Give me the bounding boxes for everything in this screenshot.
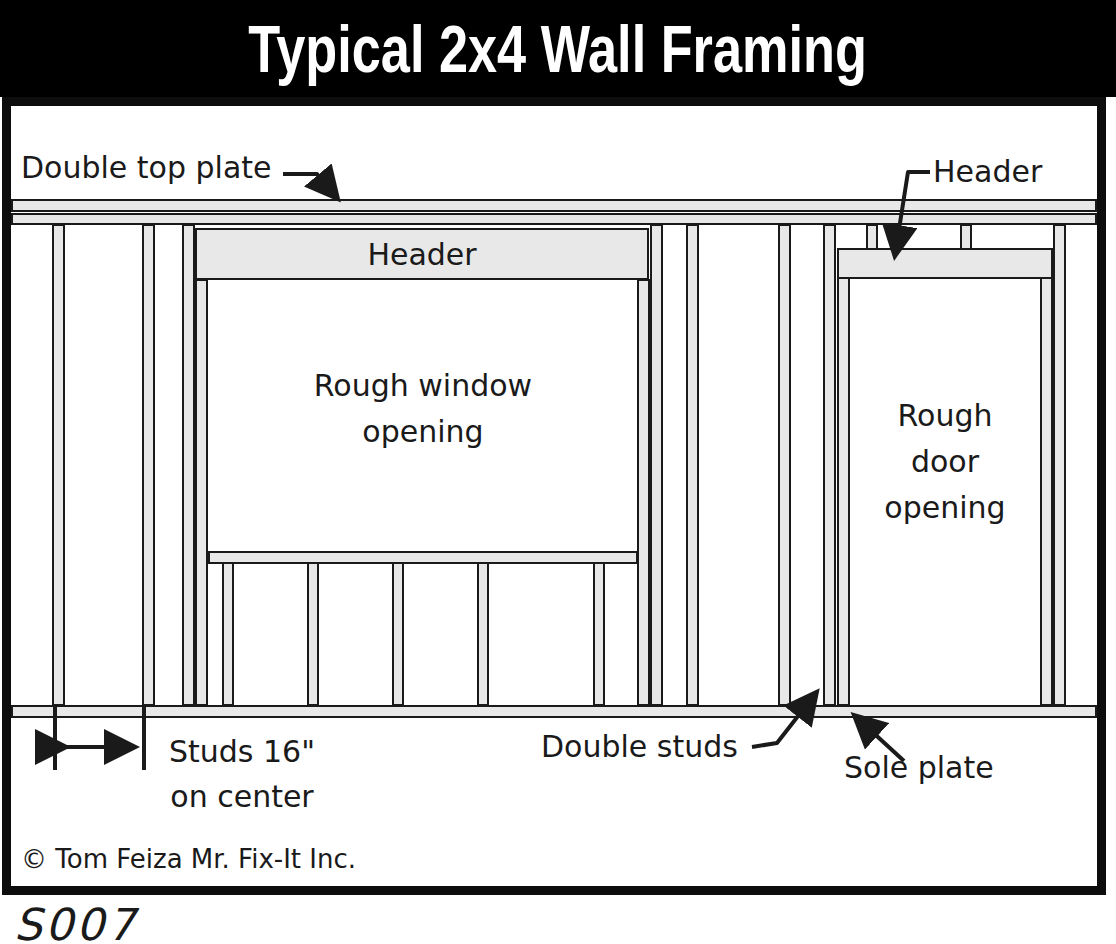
stud: [52, 224, 65, 706]
cripple-stud: [960, 224, 972, 250]
wall-framing-diagram: Typical 2x4 Wall Framing: [0, 0, 1116, 944]
rough-window-opening-label: Rough window opening: [208, 363, 638, 455]
stud: [778, 224, 791, 706]
cripple-stud: [307, 562, 319, 706]
cripple-stud: [392, 562, 404, 706]
cripple-stud: [477, 562, 489, 706]
studs-16-on-center-label: Studs 16" on center: [145, 729, 339, 819]
door-king-stud-left: [823, 224, 836, 706]
double-top-plate-label: Double top plate: [21, 150, 272, 186]
title-bar: Typical 2x4 Wall Framing: [0, 0, 1116, 97]
window-trimmer-left: [195, 279, 208, 706]
page-title: Typical 2x4 Wall Framing: [249, 10, 868, 87]
door-trimmer-left: [837, 277, 850, 706]
stud: [142, 224, 155, 706]
sole-plate: [11, 705, 1097, 718]
double-studs-label: Double studs: [541, 729, 738, 765]
window-king-stud-left: [182, 224, 195, 706]
figure-code: S007: [14, 899, 138, 944]
cripple-stud: [866, 224, 878, 250]
cripple-stud: [222, 562, 234, 706]
door-trimmer-right: [1040, 277, 1053, 706]
top-plate-upper: [11, 199, 1097, 212]
door-header-label: Header: [933, 154, 1042, 190]
window-king-stud-right: [650, 224, 663, 706]
window-sill: [208, 551, 638, 564]
rough-door-opening-label: Rough door opening: [850, 393, 1040, 531]
stud: [686, 224, 699, 706]
top-plate-lower: [11, 213, 1097, 225]
window-header-label: Header: [195, 228, 649, 280]
sole-plate-label: Sole plate: [844, 750, 994, 786]
diagram-frame: Double top plate Header Header Rough win…: [2, 97, 1106, 895]
cripple-stud: [593, 562, 605, 706]
double-top-plate-arrow: [283, 174, 337, 198]
door-header-beam: [837, 248, 1053, 279]
copyright-text: © Tom Feiza Mr. Fix-It Inc.: [21, 844, 356, 874]
door-king-stud-right: [1053, 224, 1066, 706]
window-trimmer-right: [637, 279, 650, 706]
